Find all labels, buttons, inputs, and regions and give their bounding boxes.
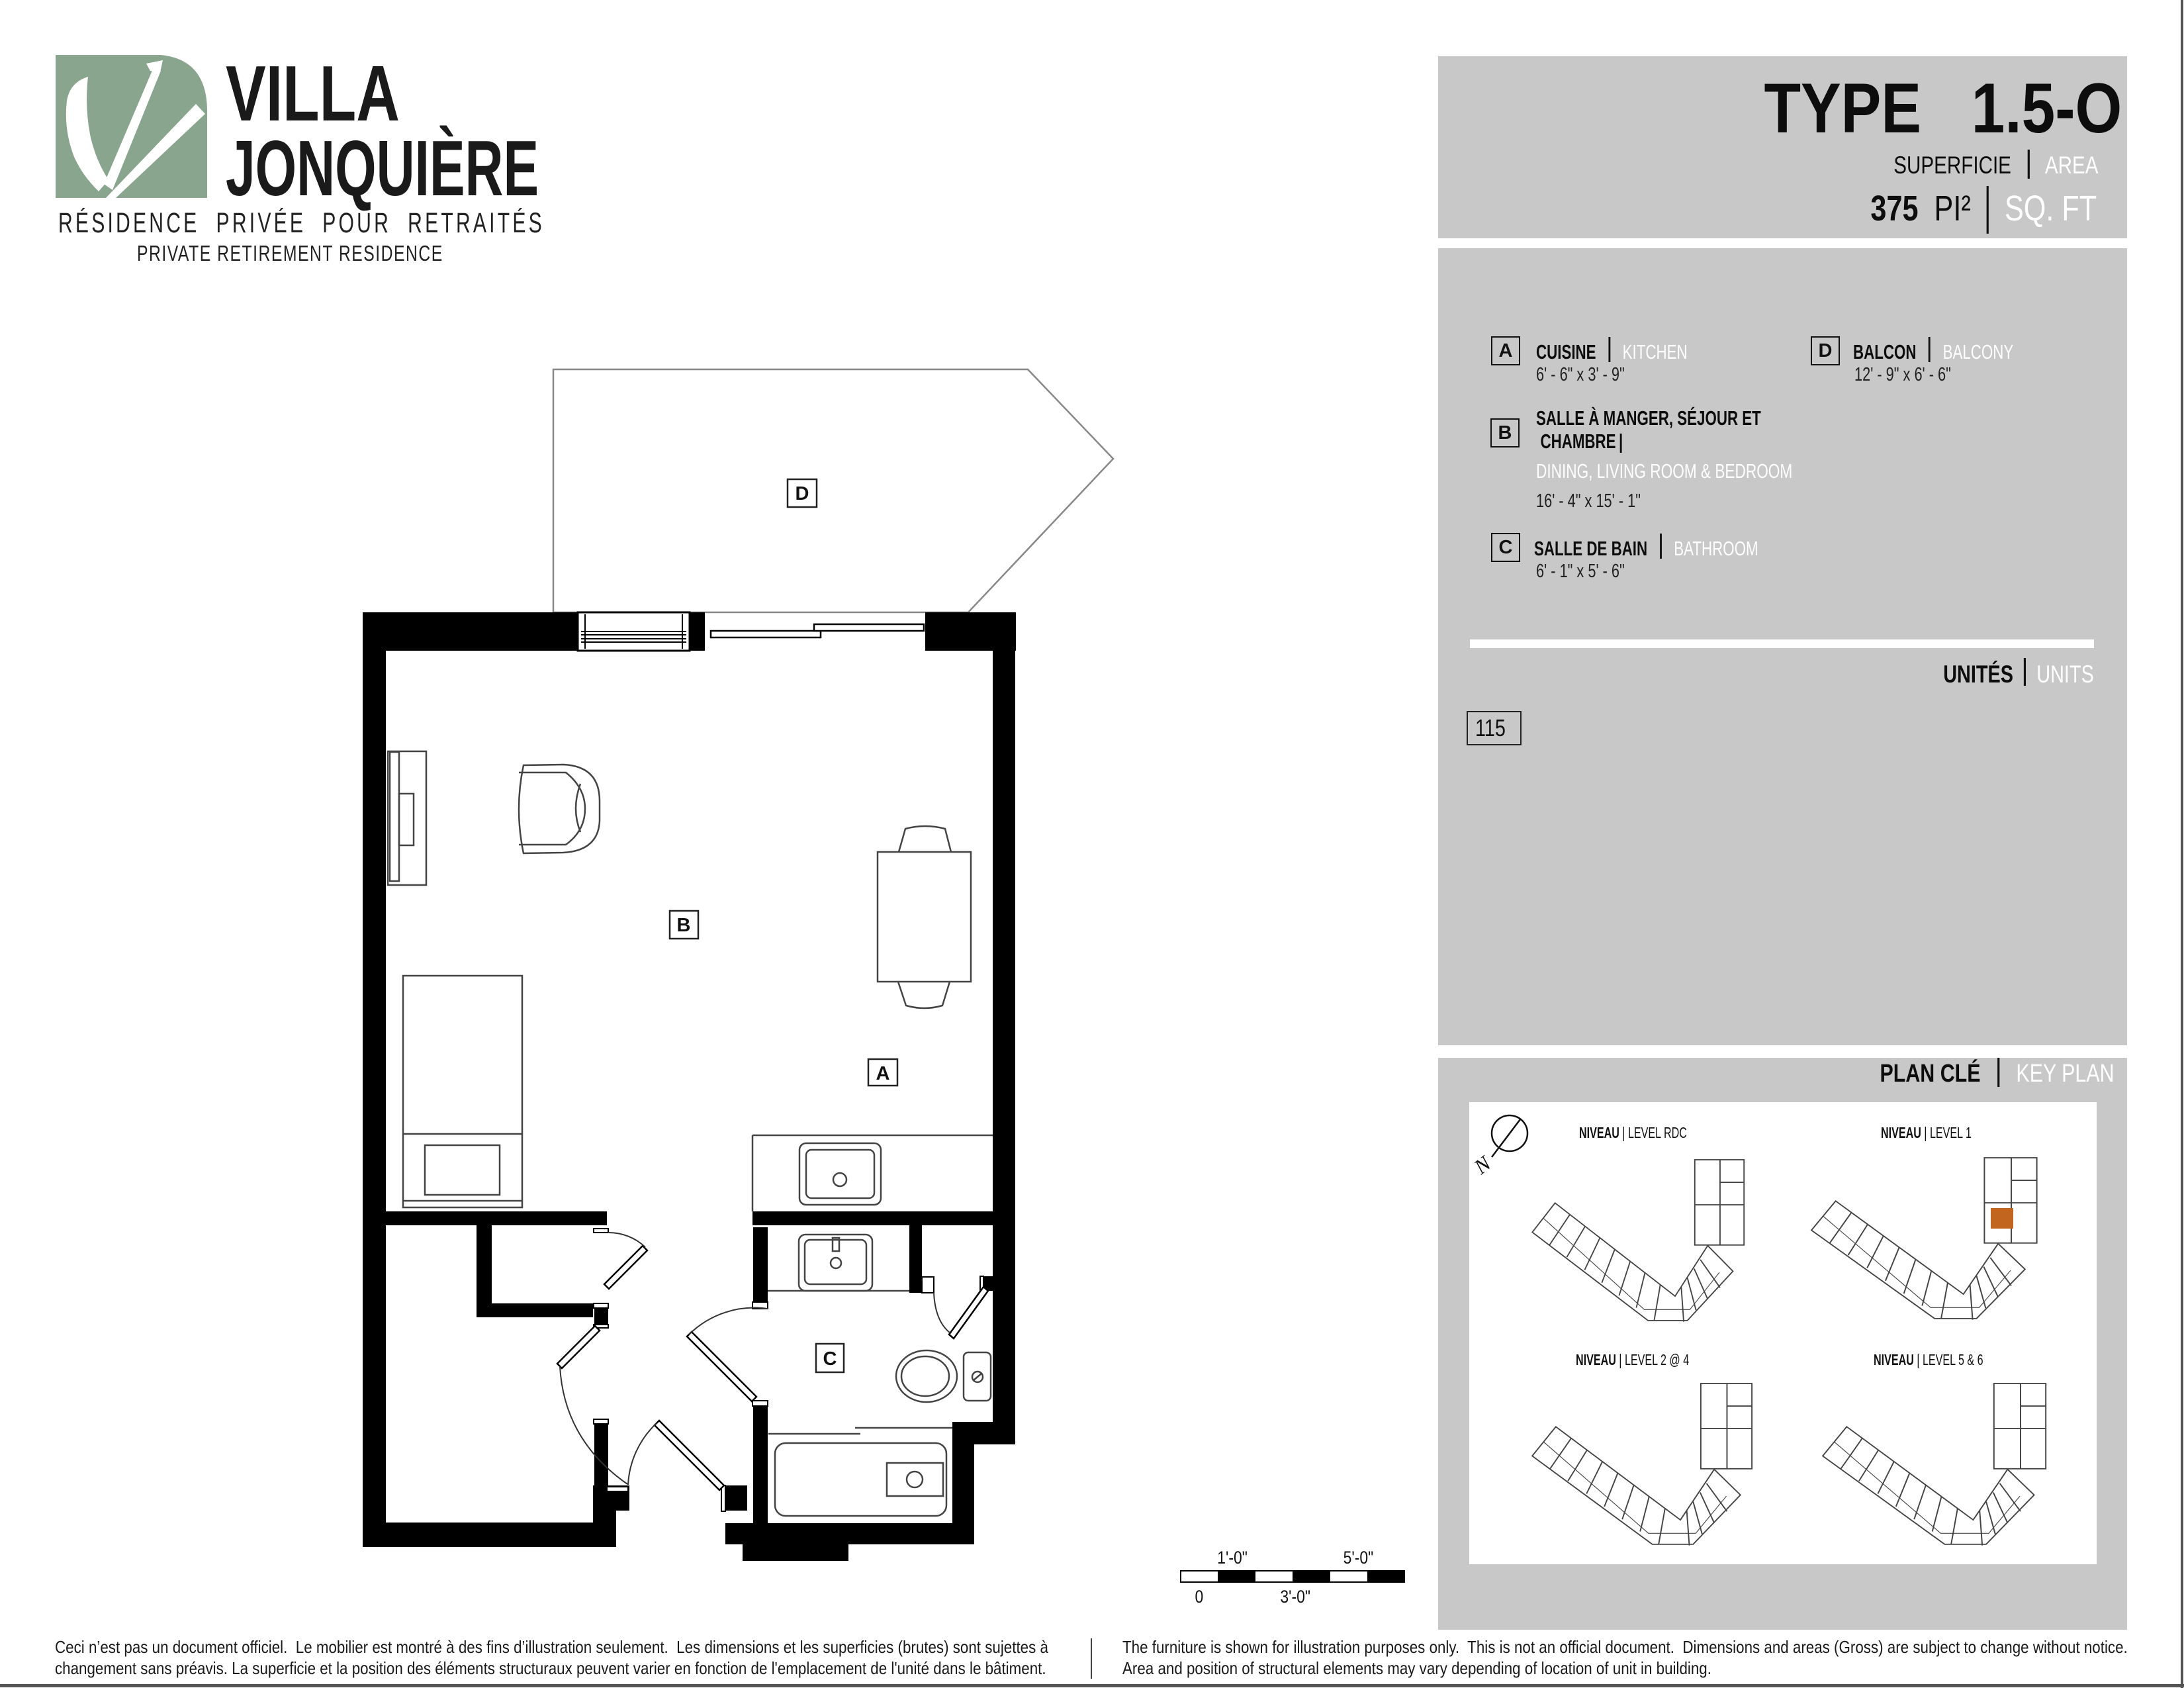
svg-text:1'-0": 1'-0" [1217,1548,1248,1568]
svg-text:D: D [796,483,809,504]
svg-text:A: A [876,1063,890,1084]
svg-text:N: N [1469,1150,1496,1179]
svg-text:5'-0": 5'-0" [1343,1548,1374,1568]
svg-text:3'-0": 3'-0" [1280,1587,1310,1607]
svg-text:0: 0 [1195,1587,1204,1607]
svg-text:C: C [823,1348,837,1370]
svg-text:B: B [677,915,691,936]
